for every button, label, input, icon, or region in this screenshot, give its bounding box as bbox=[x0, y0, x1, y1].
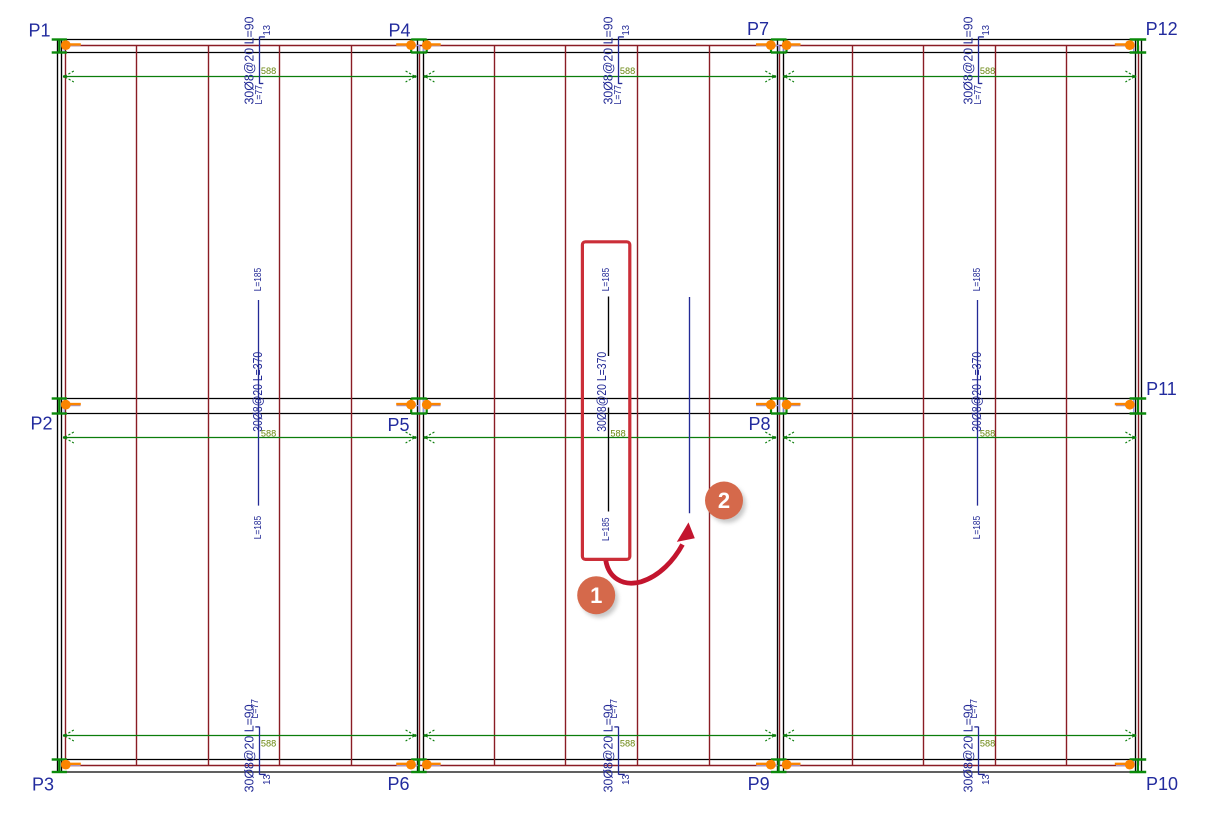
svg-text:30Ø8@20 L=370: 30Ø8@20 L=370 bbox=[251, 352, 265, 432]
svg-text:588: 588 bbox=[261, 66, 276, 76]
svg-text:588: 588 bbox=[620, 66, 635, 76]
svg-text:P7: P7 bbox=[747, 19, 769, 39]
svg-text:L=77: L=77 bbox=[969, 699, 980, 719]
svg-text:L=185: L=185 bbox=[601, 517, 612, 541]
svg-text:P6: P6 bbox=[387, 774, 409, 794]
svg-text:L=185: L=185 bbox=[972, 267, 983, 291]
svg-text:L=185: L=185 bbox=[253, 267, 264, 291]
svg-text:L=77: L=77 bbox=[609, 699, 620, 719]
svg-text:13: 13 bbox=[262, 774, 273, 785]
svg-text:L=77: L=77 bbox=[254, 85, 265, 105]
svg-text:1: 1 bbox=[590, 583, 602, 608]
svg-text:L=185: L=185 bbox=[253, 515, 264, 539]
svg-text:L=77: L=77 bbox=[250, 699, 261, 719]
svg-text:P11: P11 bbox=[1146, 379, 1177, 399]
svg-text:588: 588 bbox=[980, 739, 995, 749]
svg-text:588: 588 bbox=[620, 739, 635, 749]
svg-text:13: 13 bbox=[981, 25, 992, 36]
svg-text:L=185: L=185 bbox=[601, 267, 612, 291]
svg-text:13: 13 bbox=[621, 25, 632, 36]
svg-text:588: 588 bbox=[610, 428, 625, 438]
svg-text:L=185: L=185 bbox=[972, 515, 983, 539]
svg-text:30Ø8@20 L=370: 30Ø8@20 L=370 bbox=[595, 352, 609, 432]
svg-text:P3: P3 bbox=[32, 775, 54, 795]
svg-text:P10: P10 bbox=[1146, 774, 1178, 794]
svg-text:P9: P9 bbox=[748, 774, 770, 794]
svg-text:P8: P8 bbox=[748, 414, 770, 434]
svg-text:13: 13 bbox=[262, 25, 273, 36]
svg-text:2: 2 bbox=[718, 488, 730, 513]
svg-text:P2: P2 bbox=[30, 414, 52, 434]
svg-text:L=77: L=77 bbox=[973, 85, 984, 105]
svg-text:13: 13 bbox=[981, 774, 992, 785]
svg-text:588: 588 bbox=[980, 66, 995, 76]
svg-text:588: 588 bbox=[261, 739, 276, 749]
svg-text:L=77: L=77 bbox=[613, 85, 624, 105]
svg-text:13: 13 bbox=[621, 774, 632, 785]
svg-text:P4: P4 bbox=[388, 21, 410, 41]
svg-text:P5: P5 bbox=[387, 415, 409, 435]
svg-text:30Ø8@20 L=370: 30Ø8@20 L=370 bbox=[970, 352, 984, 432]
svg-text:P1: P1 bbox=[28, 21, 50, 41]
svg-text:P12: P12 bbox=[1146, 19, 1178, 39]
